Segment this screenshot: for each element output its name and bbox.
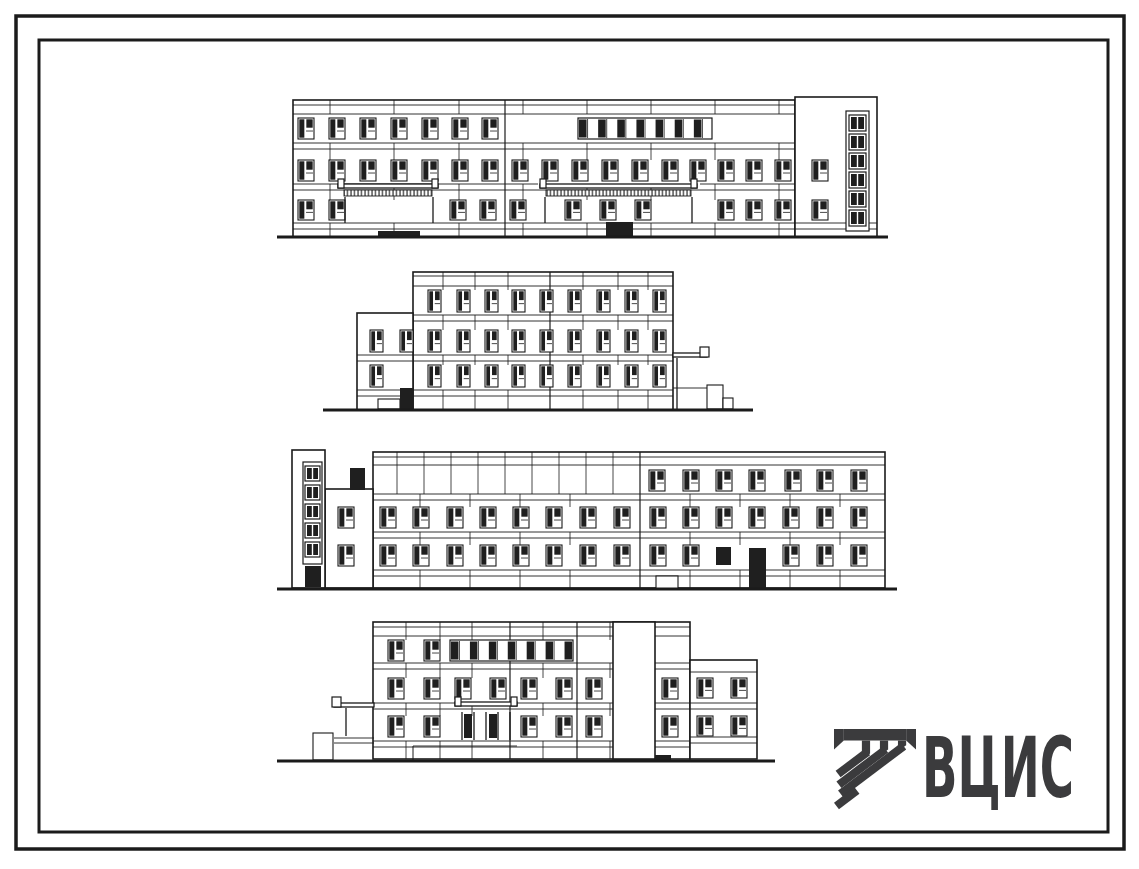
elevation-1-drawing bbox=[277, 97, 888, 237]
elevation-drawings bbox=[277, 97, 897, 761]
vcis-logo-icon bbox=[834, 729, 916, 806]
elevation-3-drawing bbox=[277, 450, 897, 589]
drawing-sheet: ВЦИС bbox=[0, 0, 1139, 869]
vcis-logo: ВЦИС bbox=[834, 719, 1074, 817]
logo-text: ВЦИС bbox=[922, 719, 1074, 817]
elevation-2-drawing bbox=[323, 272, 753, 410]
elevation-sheet-canvas: ВЦИС bbox=[0, 0, 1139, 869]
elevation-4-drawing bbox=[277, 622, 775, 761]
